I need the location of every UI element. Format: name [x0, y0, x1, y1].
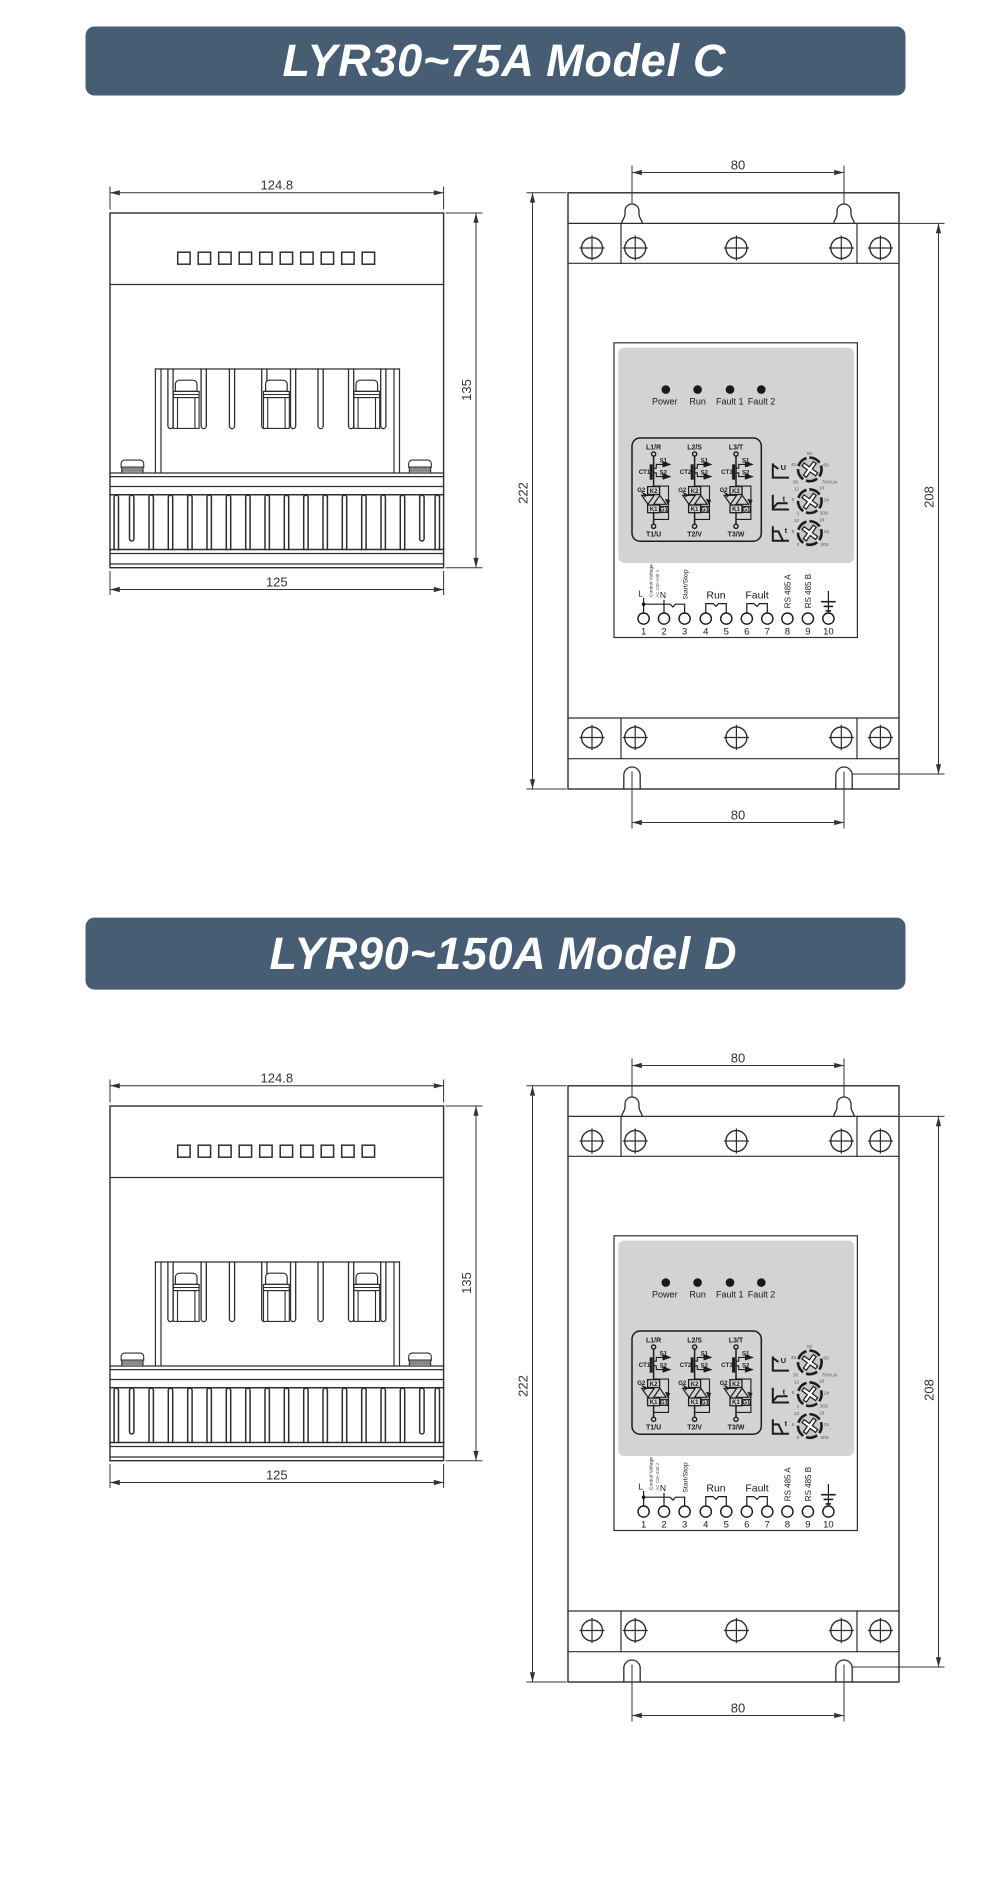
svg-text:LYR90~150A Model D: LYR90~150A Model D [270, 928, 737, 979]
svg-text:LYR30~75A Model C: LYR30~75A Model C [283, 35, 728, 86]
